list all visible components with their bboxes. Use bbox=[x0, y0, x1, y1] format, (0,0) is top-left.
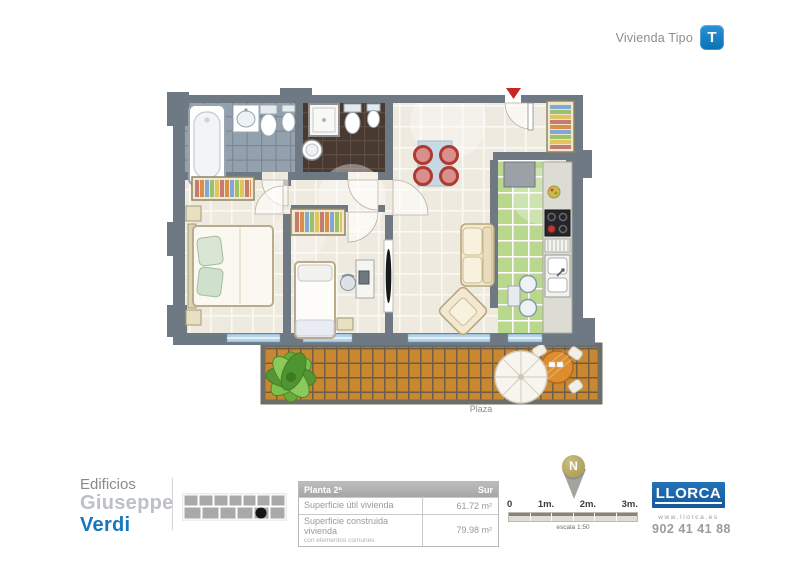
scale-tick: 3m. bbox=[622, 499, 638, 510]
unit-location-dot bbox=[256, 508, 267, 519]
scale-caption: escala 1:50 bbox=[508, 524, 638, 531]
parasol bbox=[495, 351, 547, 403]
nightstand bbox=[186, 310, 201, 325]
bidet bbox=[282, 105, 295, 132]
hall-closet bbox=[547, 101, 574, 152]
pillow bbox=[196, 236, 223, 267]
dish-rack bbox=[545, 239, 570, 252]
window bbox=[227, 334, 280, 342]
row-label: Superficie útil vivienda bbox=[299, 499, 422, 513]
entrance-door-leaf bbox=[528, 103, 533, 130]
bidet bbox=[367, 104, 380, 128]
surface-table: Planta 2ª Sur Superficie útil vivienda 6… bbox=[298, 481, 499, 547]
toilet bbox=[344, 104, 361, 134]
sink bbox=[233, 105, 259, 132]
logo-phone: 902 41 41 88 bbox=[652, 522, 725, 536]
compass: N bbox=[556, 455, 592, 503]
entrance-hall bbox=[547, 101, 574, 152]
logo-block: LLORCA www.llorca.es 902 41 41 88 bbox=[652, 482, 725, 536]
computer bbox=[359, 271, 369, 284]
stool bbox=[520, 300, 537, 317]
shower bbox=[309, 104, 339, 136]
tv bbox=[386, 249, 392, 303]
type-t-badge: T bbox=[700, 25, 724, 50]
tv-unit bbox=[384, 240, 393, 312]
washbasin bbox=[302, 140, 322, 160]
north-icon: N bbox=[562, 455, 585, 478]
entrance-arrow-icon bbox=[506, 88, 521, 99]
desk bbox=[356, 260, 374, 298]
building-footprint-map bbox=[181, 489, 288, 534]
dining-chair bbox=[441, 147, 458, 164]
scale-bar-segments bbox=[508, 512, 638, 522]
double-bed bbox=[188, 224, 273, 308]
dining-chair bbox=[415, 168, 432, 185]
dining-chair bbox=[415, 147, 432, 164]
table-row: Superficie construida vivienda con eleme… bbox=[299, 514, 498, 546]
dining-area bbox=[415, 141, 458, 186]
fridge bbox=[504, 162, 535, 187]
nightstand bbox=[186, 206, 201, 221]
bedside-unit bbox=[337, 318, 353, 330]
divider bbox=[172, 478, 173, 530]
planta-label: Planta 2ª bbox=[304, 485, 342, 495]
wardrobe bbox=[192, 177, 254, 200]
stool bbox=[520, 276, 537, 293]
logo-website: www.llorca.es bbox=[652, 514, 725, 521]
surface-table-header: Planta 2ª Sur bbox=[299, 482, 498, 497]
single-bed bbox=[295, 262, 335, 338]
llorca-logo-text: LLORCA bbox=[655, 486, 723, 504]
llorca-logo: LLORCA bbox=[652, 482, 725, 508]
brand-giuseppe: Giuseppe bbox=[80, 493, 174, 515]
stool-table bbox=[508, 286, 520, 306]
brand-verdi: Verdi bbox=[80, 515, 174, 537]
row-label-sub: con elementos comunes bbox=[304, 537, 417, 544]
desk-chair bbox=[341, 275, 356, 291]
scale-ticks: 0 1m. 2m. 3m. bbox=[508, 499, 638, 510]
kitchen-sink bbox=[545, 255, 570, 297]
dining-chair bbox=[441, 168, 458, 185]
scale-tick: 0 bbox=[507, 499, 512, 510]
brand-edificios: Edificios bbox=[80, 477, 174, 493]
row-label: Superficie construida vivienda con eleme… bbox=[299, 515, 422, 546]
pillow bbox=[196, 267, 223, 298]
row-value: 61.72 m² bbox=[422, 498, 498, 514]
scale-tick: 2m. bbox=[580, 499, 596, 510]
footprint-svg bbox=[181, 489, 288, 529]
table-row: Superficie útil vivienda 61.72 m² bbox=[299, 497, 498, 514]
pillow bbox=[298, 265, 332, 281]
wardrobe bbox=[291, 209, 345, 235]
window bbox=[508, 334, 542, 342]
row-value: 79.98 m² bbox=[422, 515, 498, 546]
floor-plan bbox=[165, 80, 610, 420]
floor-plan-svg bbox=[165, 80, 610, 420]
scale-bar: 0 1m. 2m. 3m. escala 1:50 bbox=[508, 499, 638, 531]
orientation-label: Sur bbox=[478, 485, 493, 495]
bathtub-drain bbox=[204, 117, 209, 122]
row-label-main: Superficie construida vivienda bbox=[304, 516, 388, 536]
window bbox=[408, 334, 490, 342]
fruit-bowl bbox=[548, 186, 560, 198]
toilet bbox=[260, 105, 277, 136]
stove bbox=[545, 210, 570, 236]
plaza-label: Plaza bbox=[448, 404, 514, 414]
vivienda-tipo-label: Vivienda Tipo bbox=[598, 31, 693, 45]
brand-block: Edificios Giuseppe Verdi bbox=[80, 477, 174, 536]
sofa bbox=[461, 224, 494, 286]
terrace bbox=[263, 343, 600, 403]
floor-plan-page: Vivienda Tipo T bbox=[0, 0, 799, 571]
scale-tick: 1m. bbox=[538, 499, 554, 510]
